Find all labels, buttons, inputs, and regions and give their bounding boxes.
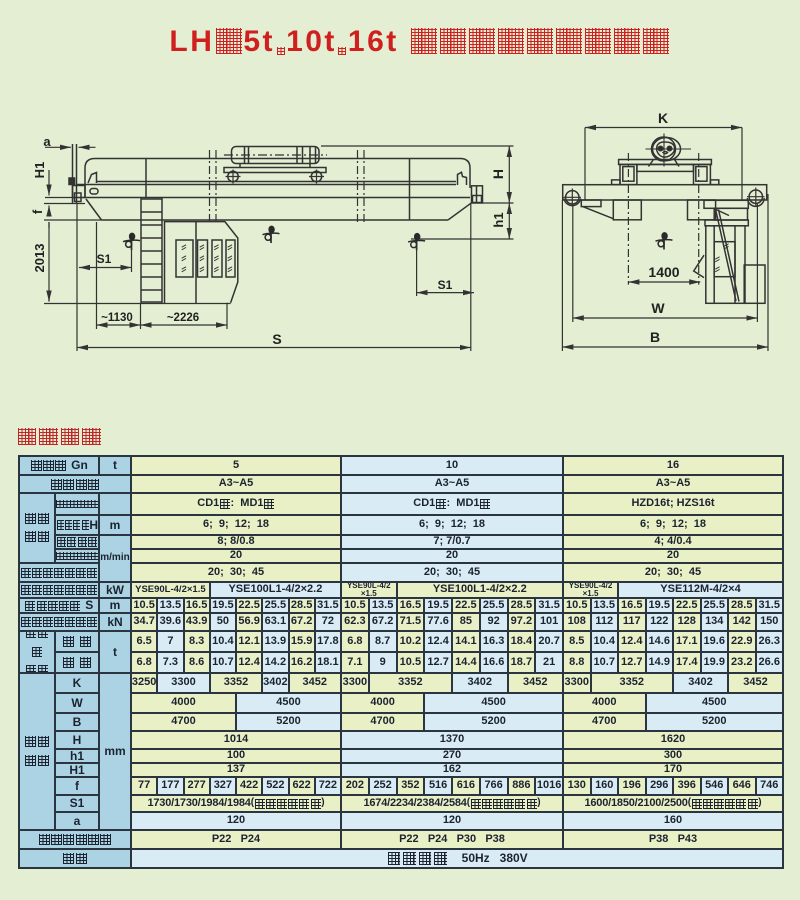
svg-text:~1130: ~1130	[101, 312, 133, 324]
svg-text:H: H	[490, 169, 506, 179]
svg-text:K: K	[658, 110, 668, 126]
svg-text:W: W	[651, 300, 665, 316]
svg-text:h1: h1	[491, 212, 506, 227]
svg-text:~2226: ~2226	[167, 312, 199, 324]
svg-text:S: S	[272, 331, 281, 347]
svg-text:B: B	[650, 329, 660, 345]
svg-text:S1: S1	[97, 252, 112, 266]
svg-text:1400: 1400	[648, 264, 679, 280]
svg-text:a: a	[43, 134, 51, 149]
svg-text:S1: S1	[438, 278, 453, 292]
svg-text:2013: 2013	[32, 244, 47, 273]
svg-text:H1: H1	[32, 162, 47, 179]
svg-text:f: f	[30, 209, 45, 214]
